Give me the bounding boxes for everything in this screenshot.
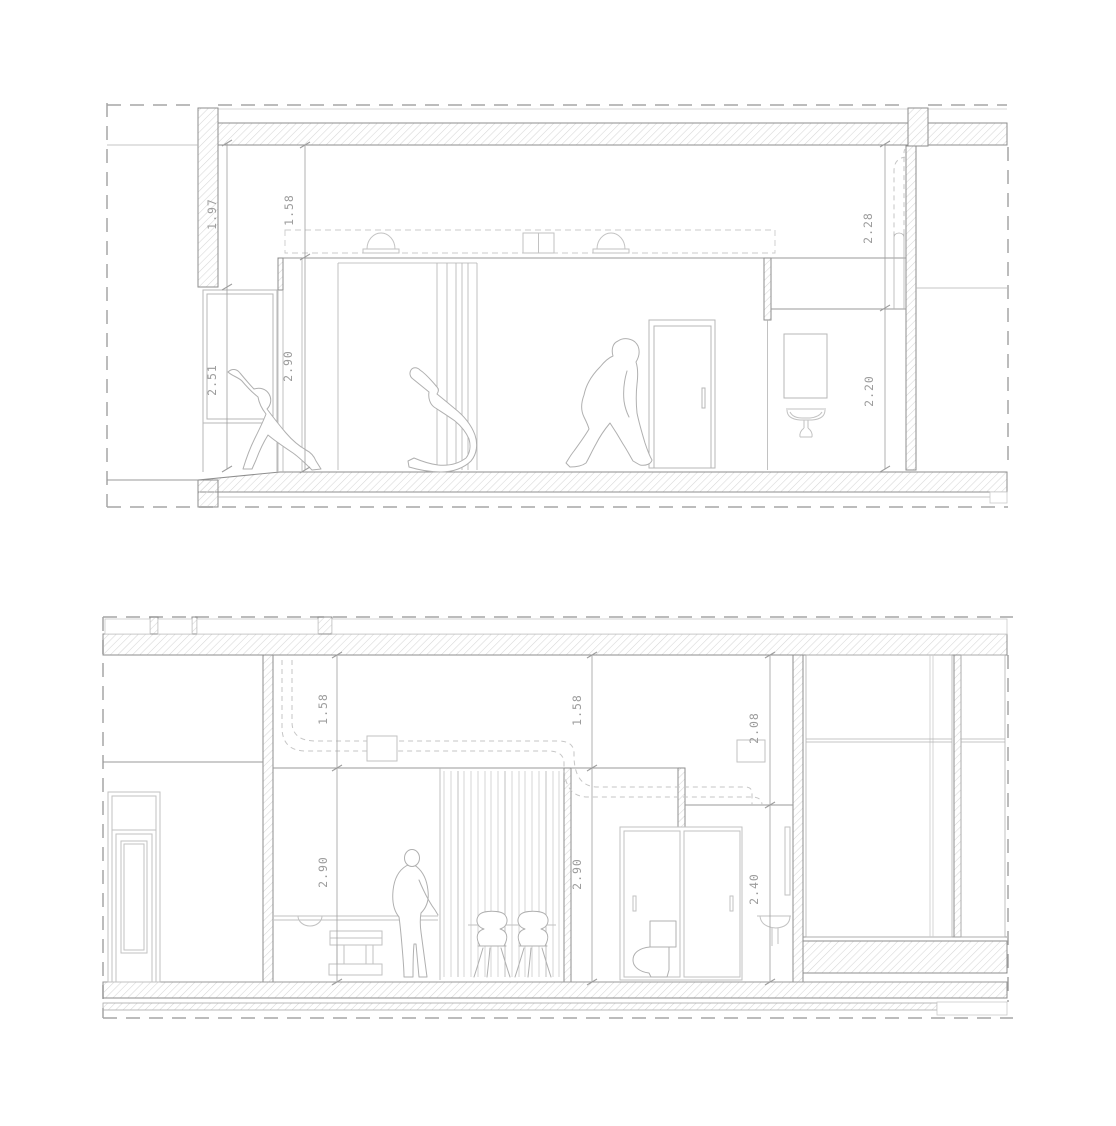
door-handle	[702, 388, 705, 408]
figure-stretching-left	[228, 369, 321, 470]
toilet	[633, 921, 676, 977]
structure-walls-slabs	[103, 617, 1007, 1015]
ceiling-and-light-track	[283, 230, 906, 258]
dim-label-room-height: 2.90	[281, 350, 295, 382]
bathroom-upper	[771, 149, 906, 437]
dim-label-lintel: 1.97	[205, 198, 219, 230]
dim-label-room-left: 2.90	[316, 856, 330, 888]
boundary-dashed-lines	[107, 103, 1008, 507]
figure-head	[405, 850, 420, 867]
lower-section: 1.58 2.90 1.58 2.90 2.08 2.40	[103, 617, 1013, 1018]
roof-slab	[218, 123, 908, 145]
cabinet-handle	[730, 896, 733, 911]
floor-edge-block	[198, 480, 218, 507]
cabinet-handle	[633, 896, 636, 911]
mirror	[784, 334, 827, 398]
partition-post	[278, 258, 283, 290]
track-junction-box	[523, 233, 554, 253]
floor-slab	[198, 472, 1007, 492]
right-parapet-pier	[908, 108, 928, 146]
duct-unit-box	[367, 736, 397, 761]
dim-label-soffit: 1.58	[282, 194, 296, 226]
interior-partitions	[278, 258, 771, 472]
folding-glass-stack	[437, 263, 468, 470]
table-leg	[337, 945, 344, 964]
right-party-wall	[906, 146, 916, 470]
section-drawing-canvas: 1.97 2.51 1.58 2.90 2.28 2.20	[0, 0, 1116, 1126]
upper-section: 1.97 2.51 1.58 2.90 2.28 2.20	[107, 103, 1008, 507]
dim-label-bath-height: 2.40	[747, 873, 761, 905]
floor-edge-detail	[990, 492, 1007, 503]
upper-slab	[103, 634, 1007, 655]
slab-pier	[318, 617, 332, 634]
facade-wall	[793, 655, 803, 982]
mirror	[785, 827, 790, 895]
sections-svg: 1.97 2.51 1.58 2.90 2.28 2.20	[0, 0, 1116, 1126]
footing-strip	[103, 1003, 937, 1010]
figure-walking-man	[566, 339, 652, 467]
dim-label-bath-drop: 2.08	[747, 712, 761, 744]
dome-lamp	[363, 233, 399, 253]
duct-riser	[894, 149, 906, 309]
slab-recess	[332, 619, 1007, 634]
table-leg	[366, 945, 373, 964]
ventilation-duct	[282, 660, 762, 805]
wall-hung-sink	[757, 916, 791, 946]
dome-lamp	[593, 233, 629, 253]
slab-pier	[150, 617, 158, 634]
chairs	[474, 911, 551, 977]
interior-door	[649, 320, 715, 468]
dim-label-window: 2.51	[205, 364, 219, 396]
facade-glazing	[806, 655, 1005, 937]
left-room-wall	[263, 655, 273, 982]
curtain-and-glazing	[440, 768, 559, 980]
floor-slab	[103, 982, 1007, 998]
bathroom-lower	[620, 740, 791, 980]
dim-label-duct-drop: 2.28	[861, 212, 875, 244]
dim-label-room-right: 2.90	[570, 858, 584, 890]
dimensions-upper: 1.97 2.51 1.58 2.90 2.28 2.20	[205, 140, 890, 473]
floor-edge-detail	[937, 1002, 1007, 1015]
cabinet-panel	[684, 831, 740, 977]
structure-walls-slabs	[107, 108, 1007, 507]
dim-label-soffit-right: 1.58	[570, 694, 584, 726]
slab-pier	[192, 617, 197, 634]
dim-label-soffit-left: 1.58	[316, 693, 330, 725]
background-door-elevation	[108, 792, 160, 982]
counter-basin	[298, 916, 322, 926]
spandrel	[803, 941, 1007, 973]
left-facade-wall	[198, 108, 218, 287]
window-mullion	[954, 655, 961, 937]
dim-label-bath-height: 2.20	[862, 375, 876, 407]
wall-hung-sink	[786, 409, 826, 437]
figure-stretching-right	[408, 368, 477, 472]
window-bay	[961, 655, 1005, 937]
roof-slab-right	[928, 123, 1007, 145]
bath-partition-head	[764, 258, 771, 320]
figure-standing	[393, 850, 438, 978]
